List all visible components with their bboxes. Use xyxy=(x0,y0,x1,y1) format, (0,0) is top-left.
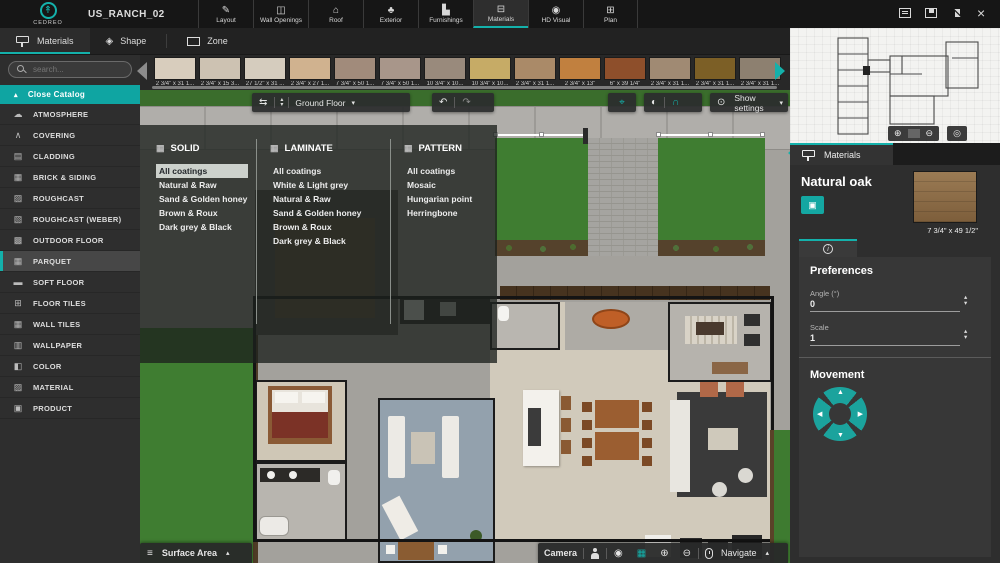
roughcast-icon: ▨ xyxy=(12,193,24,204)
filter-item[interactable]: All coatings xyxy=(270,164,380,178)
sidebar-item-wall-tiles[interactable]: ▦WALL TILES xyxy=(0,314,140,335)
project-title: US_RANCH_02 xyxy=(88,9,165,20)
surface-area-label: Surface Area xyxy=(160,548,219,558)
covering-icon: ∧ xyxy=(12,130,24,141)
door-icon: ◫ xyxy=(276,5,285,16)
sidebar-item-material[interactable]: ▨MATERIAL xyxy=(0,377,140,398)
minimap-compass-group: ◎ xyxy=(947,126,967,141)
floor-tiles-icon: ⊞ xyxy=(12,298,24,309)
material-thumbnail[interactable]: 2 3/4" x 31 1... xyxy=(514,57,556,87)
paver-walkway xyxy=(588,138,658,256)
brand-name: CEDREO xyxy=(26,20,70,26)
roof-arc-icon[interactable]: ∩ xyxy=(665,97,686,108)
list-icon: ≡ xyxy=(140,548,160,559)
wallpaper-icon: ▥ xyxy=(12,340,24,351)
floor-stepper[interactable]: ▴▾ xyxy=(275,98,288,108)
mode-tab-shape[interactable]: ◈Shape xyxy=(90,28,163,54)
sofa-icon: ▙ xyxy=(442,5,450,16)
main-nav-tabs: ✎Layout ◫Wall Openings ⌂Roof ♣Exterior ▙… xyxy=(198,0,638,28)
material-thumbnail[interactable]: 2 3/4" x 31 1... xyxy=(649,57,691,87)
catalog-column-laminate: ▦LAMINATE All coatings White & Light gre… xyxy=(270,143,380,248)
orbit-camera-icon[interactable]: ◉ xyxy=(607,548,630,559)
catalog-sidebar: ▴ Close Catalog ☁ATMOSPHERE ∧COVERING ▤C… xyxy=(0,55,140,563)
material-thumbnail[interactable]: 2 3/4" x 13" xyxy=(559,57,601,87)
tab-materials[interactable]: ⊟Materials xyxy=(473,0,528,28)
sidebar-item-parquet[interactable]: ▦PARQUET xyxy=(0,251,140,272)
sidebar-item-roughcast[interactable]: ▨ROUGHCAST xyxy=(0,188,140,209)
zoom-in-icon[interactable]: ⊕ xyxy=(888,128,908,139)
divider xyxy=(256,139,257,324)
floor-plan-canvas[interactable]: ▦SOLID All coatings Natural & Raw Sand &… xyxy=(140,90,790,563)
sidebar-item-product[interactable]: ▣PRODUCT xyxy=(0,398,140,419)
cladding-icon: ▤ xyxy=(12,151,24,162)
preferences-heading: Preferences xyxy=(810,265,873,277)
feedback-comment-icon[interactable] xyxy=(899,7,912,19)
exit-fullscreen-icon[interactable] xyxy=(951,7,964,19)
wall-tiles-icon: ▦ xyxy=(12,319,24,330)
logo-tree-icon: ↟ xyxy=(40,2,57,19)
zoom-out-icon[interactable]: ⊖ xyxy=(676,548,698,559)
angle-label: Angle (°) xyxy=(810,289,839,298)
lawn-front-1 xyxy=(495,138,588,242)
sidebar-item-wallpaper[interactable]: ▥WALLPAPER xyxy=(0,335,140,356)
filter-item[interactable]: White & Light grey xyxy=(270,178,380,192)
scale-field[interactable]: 1 xyxy=(810,333,960,346)
sidebar-item-brick-siding[interactable]: ▦BRICK & SIDING xyxy=(0,167,140,188)
divider xyxy=(166,34,167,48)
move-right-icon[interactable]: ▶ xyxy=(858,410,863,418)
angle-stepper[interactable]: ▴▾ xyxy=(964,295,967,306)
preferences-section: Preferences Angle (°) 0 ▴▾ Scale 1 ▴▾ Mo… xyxy=(799,257,991,557)
movement-dpad[interactable]: ▲ ▶ ▼ ◀ xyxy=(813,387,867,441)
show-settings-label: Show settings xyxy=(732,93,777,113)
filter-item[interactable]: Natural & Raw xyxy=(156,178,248,192)
search-input[interactable] xyxy=(33,62,133,77)
sphere-icon[interactable]: ◐ xyxy=(644,97,664,108)
lawn-left xyxy=(140,328,258,563)
pointer-tool[interactable]: ⌖ xyxy=(608,93,636,112)
lawn-front-2 xyxy=(658,138,765,242)
filter-item[interactable]: Natural & Raw xyxy=(270,192,380,206)
mouse-icon xyxy=(705,548,713,559)
divider xyxy=(799,357,991,358)
movement-heading: Movement xyxy=(810,369,864,381)
flowerbed-2 xyxy=(658,240,765,256)
filter-item[interactable]: Brown & Roux xyxy=(156,206,248,220)
scale-label: Scale xyxy=(810,323,829,332)
show-settings-bar[interactable]: ⊙ Show settings ▾ xyxy=(710,93,788,112)
selection-handle[interactable] xyxy=(539,132,544,137)
camera-icon: ◉ xyxy=(552,5,561,16)
zoom-in-icon[interactable]: ⊕ xyxy=(653,548,675,559)
minimap-zoom-group: ⊕ ⊖ xyxy=(888,126,939,141)
roof-icon: ⌂ xyxy=(333,5,339,16)
compass-icon[interactable]: ◎ xyxy=(947,128,967,139)
material-properties-panel: Materials Natural oak ▣ 7 3/4" x 49 1/2"… xyxy=(790,143,1000,563)
surface-area-bar[interactable]: ≡ Surface Area ▴ xyxy=(140,543,252,563)
info-tab[interactable]: i xyxy=(799,239,857,257)
material-thumbnail[interactable]: 27 1/2" x 31 ... xyxy=(244,57,286,87)
redo-icon[interactable]: ↷ xyxy=(455,97,477,108)
material-thumbnail[interactable]: 2 3/4" x 15 3... xyxy=(199,57,241,87)
scale-stepper[interactable]: ▴▾ xyxy=(964,329,967,340)
sidebar-item-covering[interactable]: ∧COVERING xyxy=(0,125,140,146)
mode-bar: Materials ◈Shape Zone xyxy=(0,28,790,55)
sidebar-item-cladding[interactable]: ▤CLADDING xyxy=(0,146,140,167)
roughcast-weber-icon: ▧ xyxy=(12,214,24,225)
apply-material-button[interactable]: ▣ xyxy=(801,196,824,214)
material-dimensions: 7 3/4" x 49 1/2" xyxy=(900,226,978,235)
swatch-icon: ▦ xyxy=(156,143,165,154)
shapes-icon: ◈ xyxy=(106,36,114,47)
material-thumbnail[interactable]: 7 3/4" x 50 1... xyxy=(334,57,376,87)
color-icon: ◧ xyxy=(12,361,24,372)
sidebar-item-roughcast-weber[interactable]: ▧ROUGHCAST (WEBER) xyxy=(0,209,140,230)
thumbnail-scrollbar[interactable] xyxy=(152,86,777,89)
chevron-down-icon: ▾ xyxy=(777,99,788,107)
move-left-icon[interactable]: ◀ xyxy=(817,410,822,418)
save-icon[interactable] xyxy=(925,7,938,19)
eye-icon: ⊙ xyxy=(710,97,732,108)
cloud-icon: ☁ xyxy=(12,109,24,120)
camera-label: Camera xyxy=(538,548,583,558)
filter-item[interactable]: Herringbone xyxy=(404,206,492,220)
tab-roof[interactable]: ⌂Roof xyxy=(308,0,363,28)
paint-roller-icon: ⊟ xyxy=(497,4,505,15)
catalog-filter-overlay: ▦SOLID All coatings Natural & Raw Sand &… xyxy=(140,125,497,363)
plan-minimap[interactable]: ⊕ ⊖ ◎ xyxy=(790,28,1000,143)
product-icon: ▣ xyxy=(12,403,24,414)
pencil-icon: ✎ xyxy=(222,5,230,16)
selection-handle[interactable] xyxy=(656,132,661,137)
tab-plan[interactable]: ⊞Plan xyxy=(583,0,638,28)
material-texture-preview[interactable] xyxy=(913,171,977,223)
zone-rect-icon xyxy=(187,37,200,46)
chevron-down-icon: ▾ xyxy=(352,99,362,107)
material-icon: ▨ xyxy=(12,382,24,393)
top-app-bar: ↟ CEDREO US_RANCH_02 ✎Layout ◫Wall Openi… xyxy=(0,0,1000,28)
search-icon xyxy=(17,65,24,72)
mode-tab-zone[interactable]: Zone xyxy=(171,28,244,54)
fence-post xyxy=(583,128,588,144)
sidebar-item-atmosphere[interactable]: ☁ATMOSPHERE xyxy=(0,104,140,125)
angle-field[interactable]: 0 xyxy=(810,299,960,312)
tab-wall-openings[interactable]: ◫Wall Openings xyxy=(253,0,308,28)
swatch-icon: ▦ xyxy=(404,143,413,154)
navigate-label[interactable]: Navigate xyxy=(719,548,759,558)
undo-icon[interactable]: ↶ xyxy=(432,97,454,108)
material-name: Natural oak xyxy=(801,174,872,189)
sidebar-item-soft-floor[interactable]: ▬SOFT FLOOR xyxy=(0,272,140,293)
material-thumbnail[interactable]: 10 3/4" x 10... xyxy=(424,57,466,87)
parquet-icon: ▦ xyxy=(12,256,24,267)
tab-exterior[interactable]: ♣Exterior xyxy=(363,0,418,28)
filter-item[interactable]: Dark grey & Black xyxy=(156,220,248,234)
sidebar-item-outdoor-floor[interactable]: ▩OUTDOOR FLOOR xyxy=(0,230,140,251)
chevron-up-icon: ▴ xyxy=(219,549,237,557)
material-thumbnail-strip: 2 3/4" x 31 1... 2 3/4" x 15 3... 27 1/2… xyxy=(140,55,790,90)
material-thumbnail[interactable]: 2 3/4" x 31 1... xyxy=(694,57,736,87)
info-icon: i xyxy=(823,244,833,254)
chevron-up-icon: ▴ xyxy=(14,91,18,99)
brick-icon: ▦ xyxy=(12,172,24,183)
move-down-icon[interactable]: ▼ xyxy=(837,432,844,439)
panel-body: Natural oak ▣ 7 3/4" x 49 1/2" i Prefere… xyxy=(790,165,1000,563)
filter-item[interactable]: Mosaic xyxy=(404,178,492,192)
close-icon[interactable]: × xyxy=(977,7,990,19)
zoom-out-icon[interactable]: ⊖ xyxy=(920,128,940,139)
filter-item[interactable]: Sand & Golden honey xyxy=(270,206,380,220)
filter-item[interactable]: Hungarian point xyxy=(404,192,492,206)
tab-furnishings[interactable]: ▙Furnishings xyxy=(418,0,473,28)
target-icon: ⌖ xyxy=(612,97,632,108)
filter-item[interactable]: All coatings xyxy=(404,164,492,178)
cedreo-logo[interactable]: ↟ CEDREO xyxy=(26,1,70,26)
filter-item[interactable]: Dark grey & Black xyxy=(270,234,380,248)
outdoor-dining-table xyxy=(398,542,434,560)
mode-tab-materials[interactable]: Materials xyxy=(0,28,90,54)
scroll-left-icon[interactable] xyxy=(128,62,147,80)
paint-roller-icon xyxy=(16,35,30,47)
sidebar-item-color[interactable]: ◧COLOR xyxy=(0,356,140,377)
swatch-icon: ▦ xyxy=(270,143,279,154)
filter-item[interactable]: Sand & Golden honey xyxy=(156,192,248,206)
camera-nav-bar: Camera ◉ ▦ ⊕ ⊖ Navigate ▴ xyxy=(538,543,788,563)
tree-icon: ♣ xyxy=(388,5,395,16)
soft-floor-icon: ▬ xyxy=(12,277,24,287)
tab-layout[interactable]: ✎Layout xyxy=(198,0,253,28)
chevron-up-icon: ▴ xyxy=(759,549,777,557)
catalog-column-solid: ▦SOLID All coatings Natural & Raw Sand &… xyxy=(156,143,248,234)
move-up-icon[interactable]: ▲ xyxy=(837,389,844,396)
sidebar-item-floor-tiles[interactable]: ⊞FLOOR TILES xyxy=(0,293,140,314)
search-box xyxy=(8,61,132,78)
material-thumbnail[interactable]: 2 3/4" x 31 1... xyxy=(154,57,196,87)
plan-view-icon[interactable]: ▦ xyxy=(630,548,653,559)
blueprint-icon: ⊞ xyxy=(606,5,614,16)
material-thumbnail[interactable]: 7 3/4" x 50 1... xyxy=(379,57,421,87)
outdoor-chair xyxy=(438,545,447,554)
sync-icon[interactable]: ⇆ xyxy=(252,97,274,108)
material-thumbnail[interactable]: 2 3/4" x 27 1... xyxy=(289,57,331,87)
undo-redo-bar: ↶ ↷ xyxy=(432,93,494,112)
outdoor-chair xyxy=(386,545,395,554)
filter-item[interactable]: All coatings xyxy=(156,164,248,178)
close-catalog-button[interactable]: ▴ Close Catalog xyxy=(0,85,140,104)
floor-toolbar: ⇆ ▴▾ Ground Floor ▾ xyxy=(252,93,410,112)
catalog-column-pattern: ▦PATTERN All coatings Mosaic Hungarian p… xyxy=(404,143,492,220)
tab-hd-visual[interactable]: ◉HD Visual xyxy=(528,0,583,28)
flowerbed-1 xyxy=(495,240,588,256)
cedreo-app-window: ↟ CEDREO US_RANCH_02 ✎Layout ◫Wall Openi… xyxy=(0,0,1000,563)
view-tools: ◐ ∩ xyxy=(644,93,702,112)
paint-roller-icon xyxy=(802,149,816,161)
window-controls: × xyxy=(899,0,990,26)
panel-tab-materials[interactable]: Materials xyxy=(790,143,893,165)
thumbnail-list: 2 3/4" x 31 1... 2 3/4" x 15 3... 27 1/2… xyxy=(154,57,781,87)
outdoor-floor-icon: ▩ xyxy=(12,235,24,246)
panel-tab-row: Materials xyxy=(790,143,1000,165)
floor-selector[interactable]: Ground Floor xyxy=(289,98,351,108)
material-thumbnail[interactable]: 6" x 39 1/4" xyxy=(604,57,646,87)
filter-item[interactable]: Brown & Roux xyxy=(270,220,380,234)
material-thumbnail[interactable]: 10 3/4" x 10... xyxy=(469,57,511,87)
first-person-icon[interactable] xyxy=(591,548,599,559)
selection-handle[interactable] xyxy=(760,132,765,137)
divider xyxy=(390,139,391,324)
selection-handle[interactable] xyxy=(708,132,713,137)
